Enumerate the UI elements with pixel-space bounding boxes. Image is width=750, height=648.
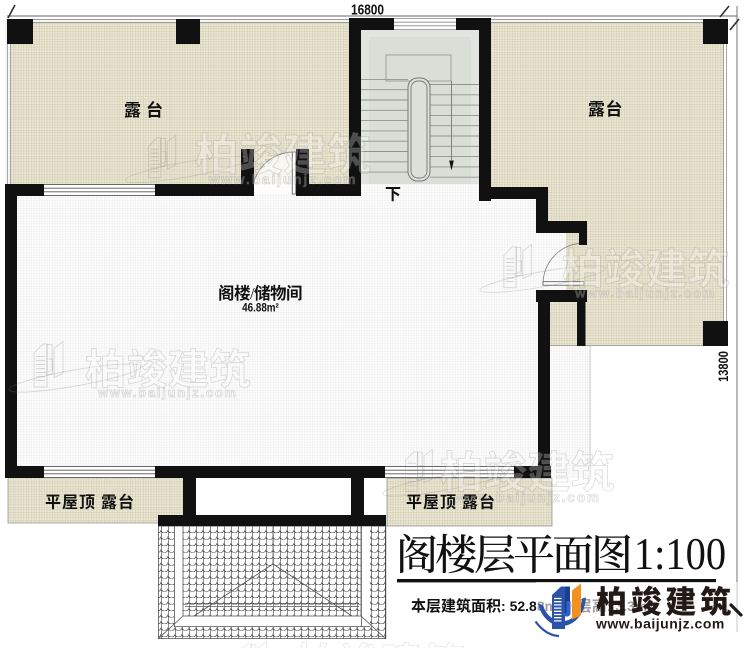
svg-text:www.baijunjz.com: www.baijunjz.com xyxy=(595,616,725,632)
svg-text:13800: 13800 xyxy=(716,351,731,382)
svg-text:露台: 露台 xyxy=(124,96,168,121)
svg-text:平屋顶 露台: 平屋顶 露台 xyxy=(406,489,496,513)
svg-text:阁楼层平面图: 阁楼层平面图 xyxy=(396,523,631,583)
svg-text:下: 下 xyxy=(385,181,401,205)
svg-text:46.88m²: 46.88m² xyxy=(242,302,279,315)
svg-text:平屋顶 露台: 平屋顶 露台 xyxy=(45,489,135,513)
svg-text:露台: 露台 xyxy=(588,95,623,120)
svg-text:阁楼/储物间: 阁楼/储物间 xyxy=(218,280,302,304)
svg-text:1:100: 1:100 xyxy=(634,529,726,580)
svg-text:16800: 16800 xyxy=(351,1,384,17)
